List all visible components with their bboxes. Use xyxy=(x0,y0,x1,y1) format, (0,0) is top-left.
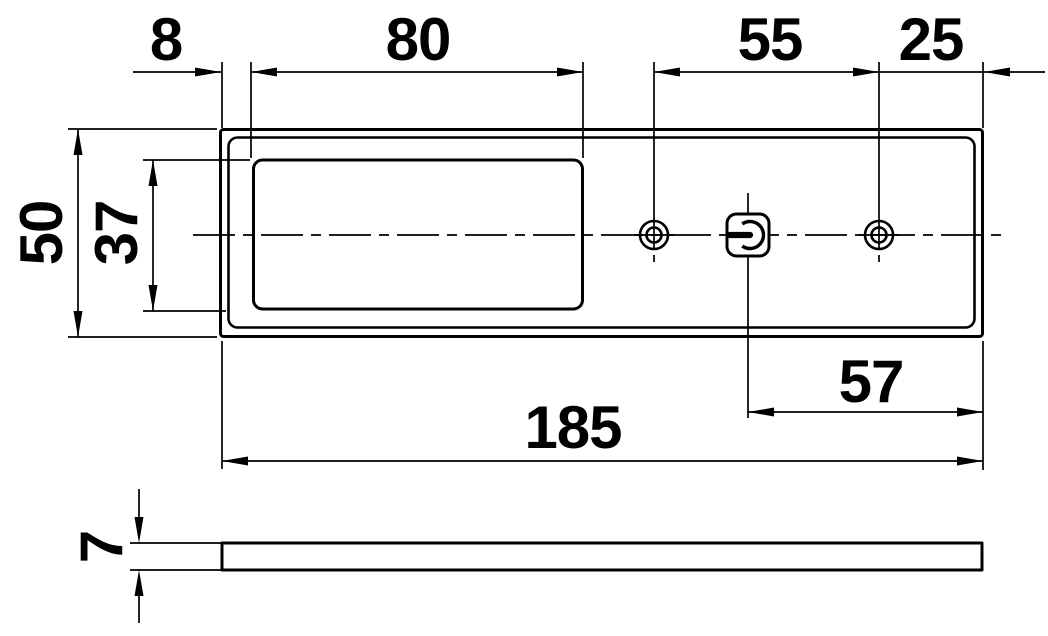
dim-switch-to-edge: 57 xyxy=(748,341,983,470)
body-inner-outline xyxy=(229,138,975,328)
dim-label-switch-to-edge: 57 xyxy=(839,348,904,415)
dim-hole-to-edge: 25 xyxy=(879,6,1045,77)
dim-label-left-inset: 8 xyxy=(150,6,182,73)
dim-label-total-width: 185 xyxy=(524,394,621,461)
dim-label-window-height: 37 xyxy=(83,201,150,266)
dim-label-hole-to-edge: 25 xyxy=(899,6,964,73)
dim-label-thickness: 7 xyxy=(68,531,135,563)
power-switch xyxy=(727,193,769,418)
dimensions: 8 80 55 25 50 xyxy=(8,6,1045,623)
side-profile-view xyxy=(222,543,982,570)
dim-thickness: 7 xyxy=(68,489,221,623)
dim-hole-spacing: 55 xyxy=(654,6,879,77)
dim-left-inset: 8 xyxy=(133,6,221,77)
dim-label-window-width: 80 xyxy=(386,6,451,73)
dim-label-body-height: 50 xyxy=(8,201,75,266)
technical-drawing: 8 80 55 25 50 xyxy=(0,0,1048,636)
profile-outline xyxy=(222,543,982,570)
dim-window-width: 80 xyxy=(251,6,583,77)
dim-label-hole-spacing: 55 xyxy=(738,6,803,73)
